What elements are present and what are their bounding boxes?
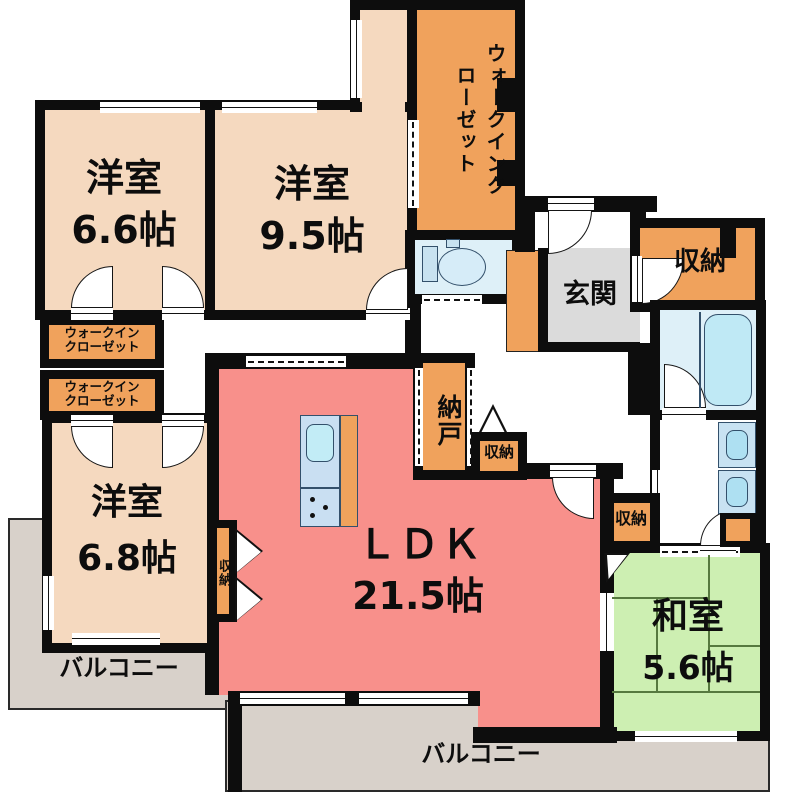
window	[43, 576, 54, 630]
window	[72, 633, 160, 645]
walk-in-closet-top	[407, 0, 525, 245]
shoe-cabinet	[506, 250, 540, 352]
storage-nando-side	[471, 432, 527, 480]
kitchen-counter-edge	[340, 415, 358, 527]
toilet-icon	[422, 246, 438, 282]
floor-plan: 洋室 6.6帖 洋室 9.5帖 洋室 6.8帖 ＬＤＫ 21.5帖 和室 5.6…	[0, 0, 800, 800]
tatami-line	[656, 597, 658, 693]
door-gap	[71, 415, 113, 426]
kitchen-divider	[301, 487, 339, 489]
ldk-floor	[478, 693, 610, 731]
toilet-flush-icon	[446, 239, 460, 248]
stove-burner-icon	[310, 513, 315, 518]
window	[222, 102, 317, 113]
hall-bath-wall	[628, 343, 654, 415]
bathtub-icon	[704, 314, 752, 406]
entry-wall-left	[515, 210, 535, 252]
bath-door-gap	[662, 408, 706, 421]
nando-sliding-door	[415, 368, 423, 466]
washroom-corner-storage	[720, 513, 756, 547]
tatami-line	[612, 597, 710, 599]
tatami-line	[708, 555, 710, 599]
washing-machine-icon	[726, 477, 748, 507]
stove-burner-icon	[323, 505, 328, 510]
wic-sliding-door	[408, 120, 419, 208]
door-gap	[71, 308, 113, 320]
wall-notch	[497, 160, 525, 186]
washitsu-ldk-opening	[600, 593, 614, 651]
window	[351, 20, 362, 98]
ldk-hall-door-gap	[550, 465, 596, 477]
walk-in-closet-left-1	[40, 316, 164, 368]
bath-divider	[699, 312, 701, 408]
room-japanese	[602, 543, 770, 741]
stove-burner-icon	[310, 497, 315, 502]
wall-notch	[497, 78, 525, 112]
entry-door-gap	[548, 198, 594, 210]
ldk-protrusion-wall	[473, 727, 617, 743]
tatami-line	[612, 691, 760, 693]
window	[635, 731, 737, 742]
toilet-icon	[438, 248, 486, 286]
wall-opening	[362, 100, 405, 114]
genkan	[538, 248, 640, 352]
balcony-divider-wall	[228, 698, 242, 792]
wall-notch	[720, 218, 736, 258]
tatami-line	[710, 645, 760, 647]
window	[100, 102, 200, 113]
storage-door-gap	[632, 256, 642, 302]
toilet-door	[422, 295, 482, 305]
window-mullion	[345, 693, 359, 704]
door-gap	[162, 415, 204, 426]
ldk-top-opening	[246, 356, 346, 367]
door-gap	[162, 308, 204, 320]
kitchen-sink-icon	[306, 424, 334, 462]
vanity-sink-icon	[726, 430, 748, 460]
